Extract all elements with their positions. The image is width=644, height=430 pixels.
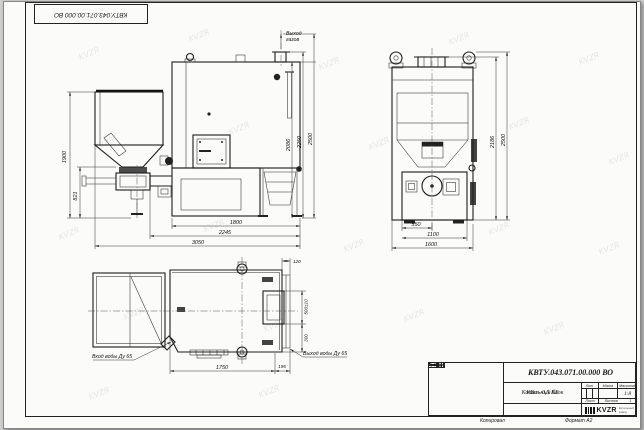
dim-feeder-height: 821 <box>73 191 79 200</box>
svg-text:KVZR: KVZR <box>317 55 341 71</box>
dim-total-height: 2500 <box>308 132 314 146</box>
dim-side-center: 550 <box>411 222 421 228</box>
dim-plan-length: 1750 <box>216 365 229 371</box>
title-block-change-table: Изм. Лист № докум. Подп. Дата Разраб. Пр… <box>429 363 503 417</box>
svg-text:KVZR: KVZR <box>122 305 146 321</box>
company-logo-text: KVZR <box>597 407 617 414</box>
copied-label: Копировал <box>480 418 505 424</box>
corner-doc-number: КВТУ.043.071.00.000 ВО <box>54 11 127 18</box>
dim-plan-flue: 500±10 <box>304 299 309 315</box>
svg-text:KVZR: KVZR <box>87 385 111 401</box>
format-label: Формат А2 <box>565 418 592 424</box>
svg-text:KVZR: KVZR <box>577 50 601 66</box>
svg-text:KVZR: KVZR <box>257 383 281 399</box>
product-name-line2: КВа - 0,5 КБ <box>526 390 558 397</box>
gas-outlet-stub <box>275 52 286 62</box>
svg-text:KVZR: KVZR <box>447 30 471 46</box>
product-name: Котельный блок КВа - 0,5 КБ <box>503 383 581 404</box>
fuel-hopper-front <box>82 91 172 218</box>
company-logo-cell: KVZR Котельный завод <box>581 404 637 417</box>
burner-fan <box>165 157 173 165</box>
svg-text:KVZR: KVZR <box>487 220 511 236</box>
sig-utv: Утв. <box>429 363 438 368</box>
svg-text:KVZR: KVZR <box>367 135 391 151</box>
dim-body-width: 1800 <box>230 220 243 226</box>
dim-side-total-height: 2500 <box>501 133 507 147</box>
dim-total-width: 3050 <box>192 240 205 246</box>
dim-plan-stub: 195 <box>278 364 286 369</box>
ash-section <box>172 168 260 216</box>
dim-side-total-width: 1600 <box>425 242 438 248</box>
svg-text:KVZR: KVZR <box>607 150 631 166</box>
thermowell <box>288 72 292 118</box>
sheets-header: Листов <box>605 399 618 403</box>
mass-value <box>599 389 618 399</box>
corner-stamp: КВТУ.043.071.00.000 ВО <box>34 4 148 24</box>
dim-flange-height: 2250 <box>297 135 303 149</box>
scale-value: 1:8 <box>618 389 637 399</box>
side-view: 2186 2500 550 1100 1600 <box>389 48 510 251</box>
lifting-lug-left <box>389 52 403 68</box>
boiler-body-front <box>172 62 300 168</box>
dim-body-height: 2086 <box>286 138 292 152</box>
title-block-doc-number: КВТУ.043.071.00.000 ВО <box>503 363 637 383</box>
dim-side-lower-width: 1100 <box>427 232 440 238</box>
svg-text:KVZR: KVZR <box>342 237 366 253</box>
svg-text:газов: газов <box>286 37 300 43</box>
svg-text:KVZR: KVZR <box>57 225 81 241</box>
water-outlet-label: Выход воды Ду 65 <box>303 351 347 357</box>
dim-feeder-width: 2245 <box>218 230 232 236</box>
title-block-empty-cell <box>503 404 581 417</box>
svg-text:KVZR: KVZR <box>597 240 621 256</box>
dim-hopper-height: 1900 <box>62 150 68 163</box>
title-block: Изм. Лист № докум. Подп. Дата Разраб. Пр… <box>428 362 636 416</box>
svg-text:KVZR: KVZR <box>77 45 101 61</box>
watermark-layer: KVZR KVZR KVZR KVZR KVZR KVZR KVZR KVZR … <box>57 27 631 401</box>
water-inlet-label: Вход воды Ду 65 <box>92 354 132 360</box>
sight-glass <box>274 74 280 80</box>
logo-bars-icon <box>585 407 594 414</box>
svg-text:KVZR: KVZR <box>402 307 426 323</box>
dim-side-inner-height: 2186 <box>490 135 496 149</box>
lifting-lug-right <box>462 52 476 68</box>
svg-text:KVZR: KVZR <box>542 320 566 336</box>
flue-duct-top <box>418 57 445 67</box>
drawing-page: { "corner_stamp": { "doc_number": "КВТУ.… <box>0 0 644 430</box>
svg-text:KVZR: KVZR <box>187 27 211 43</box>
furnace-door <box>193 135 230 168</box>
dim-plan-top: 120 <box>293 259 301 264</box>
svg-text:KVZR: KVZR <box>227 120 251 136</box>
dim-plan-offset: 300 <box>304 334 309 342</box>
front-view: Выход газов <box>62 30 316 249</box>
sheets-value: 1 <box>629 399 631 403</box>
svg-text:KVZR: KVZR <box>507 115 531 131</box>
company-logo-subtext: Котельный завод <box>619 407 634 413</box>
